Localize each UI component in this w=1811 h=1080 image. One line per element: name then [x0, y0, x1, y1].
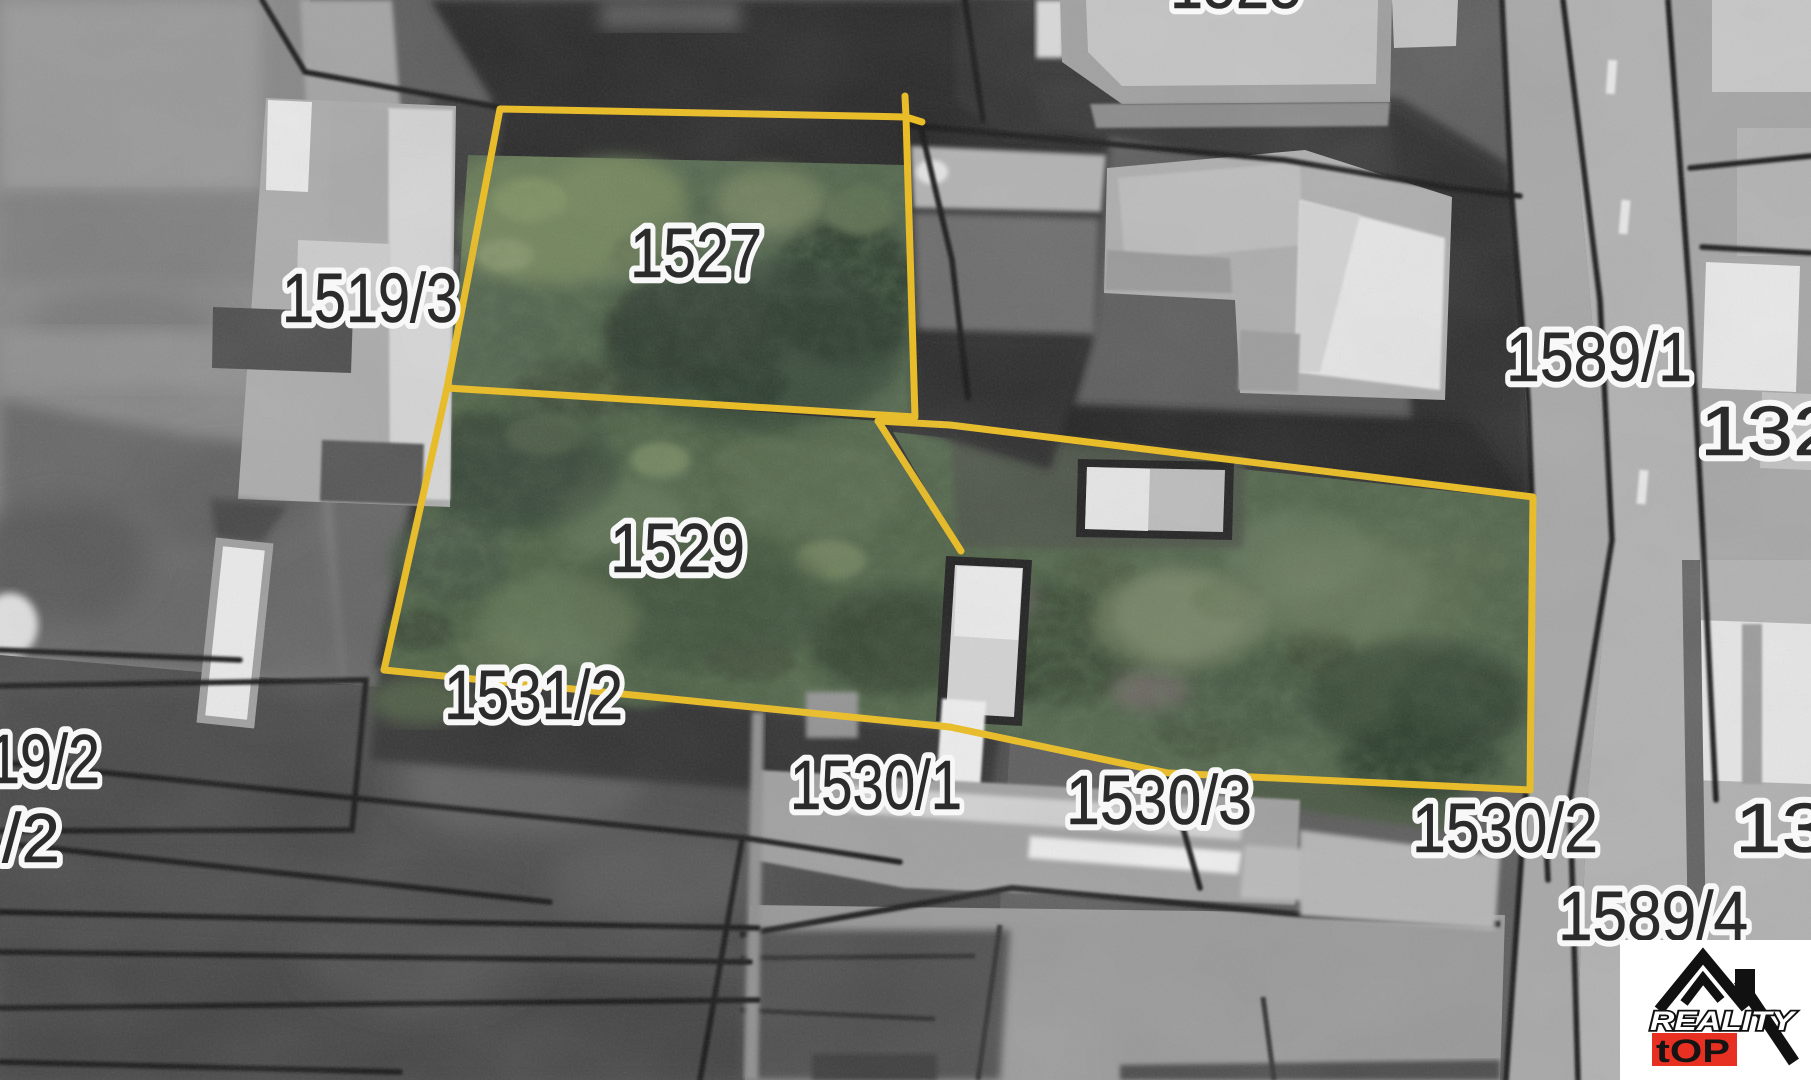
- svg-text:1589/1: 1589/1: [1506, 318, 1692, 396]
- svg-text:REALITY: REALITY: [1650, 1006, 1798, 1036]
- svg-text:1525: 1525: [1170, 0, 1302, 23]
- svg-text:1321: 1321: [1700, 392, 1811, 470]
- svg-text:/2: /2: [2, 799, 60, 877]
- svg-text:1519/2: 1519/2: [0, 720, 100, 798]
- svg-text:1530/1: 1530/1: [790, 746, 962, 824]
- svg-text:1530/2: 1530/2: [1412, 789, 1598, 867]
- svg-text:1531/2: 1531/2: [444, 656, 623, 734]
- svg-text:1519/3: 1519/3: [282, 259, 458, 337]
- svg-text:1530/3: 1530/3: [1066, 761, 1252, 839]
- svg-text:tOP: tOP: [1656, 1033, 1730, 1069]
- svg-text:1529: 1529: [610, 509, 745, 587]
- svg-text:1321: 1321: [1735, 789, 1811, 867]
- svg-text:1527: 1527: [630, 214, 762, 292]
